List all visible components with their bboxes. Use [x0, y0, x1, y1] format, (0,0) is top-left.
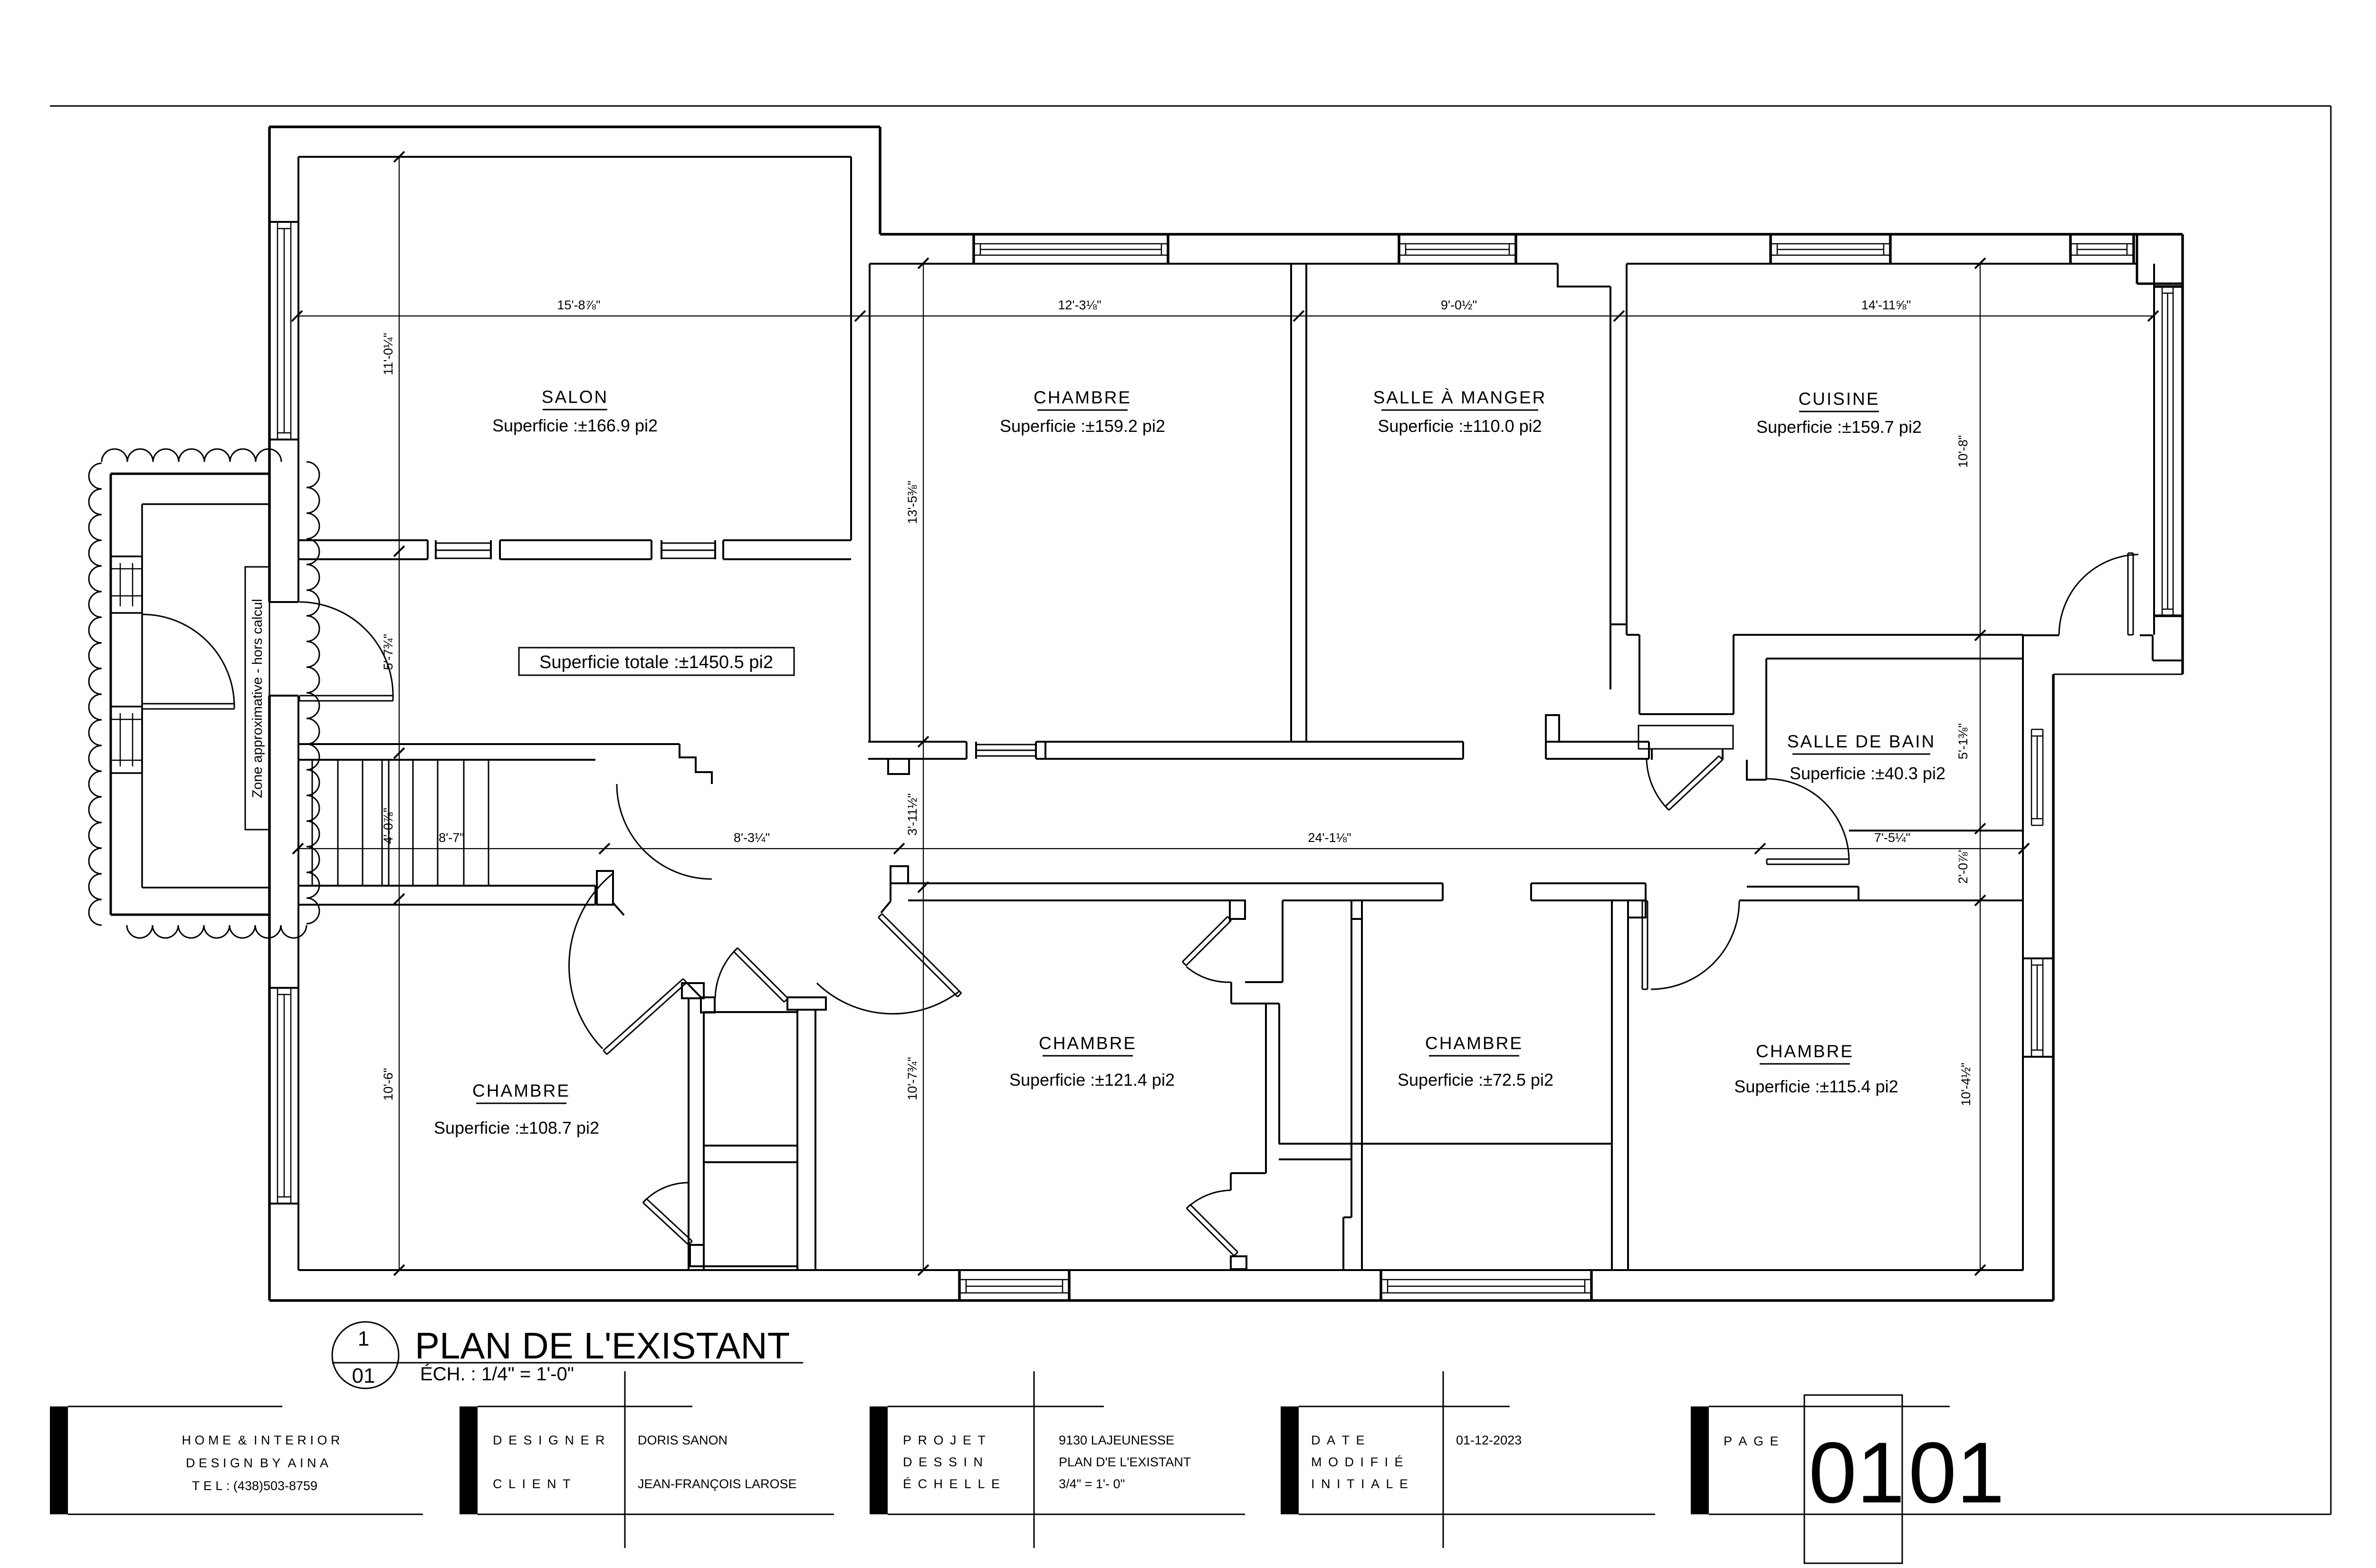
- svg-text:9'-0½": 9'-0½": [1441, 298, 1477, 312]
- svg-text:Superficie :±166.9 pi2: Superficie :±166.9 pi2: [492, 416, 658, 435]
- svg-text:5'-1⅜": 5'-1⅜": [1956, 723, 1970, 759]
- svg-text:M O D I F I É: M O D I F I É: [1311, 1455, 1405, 1469]
- svg-text:Superficie :±115.4 pi2: Superficie :±115.4 pi2: [1734, 1077, 1898, 1096]
- svg-text:14'-11⅝": 14'-11⅝": [1861, 298, 1911, 312]
- svg-text:10'-4½": 10'-4½": [1959, 1062, 1973, 1106]
- svg-text:1: 1: [358, 1327, 369, 1350]
- svg-text:01: 01: [352, 1364, 375, 1387]
- svg-text:Superficie :±110.0 pi2: Superficie :±110.0 pi2: [1378, 416, 1542, 436]
- svg-text:24'-1⅛": 24'-1⅛": [1308, 831, 1351, 845]
- svg-text:7'-5¼": 7'-5¼": [1874, 831, 1910, 845]
- svg-text:8'-7": 8'-7": [439, 831, 464, 845]
- svg-text:01: 01: [1809, 1424, 1905, 1521]
- svg-text:8'-3¼": 8'-3¼": [734, 831, 770, 845]
- svg-text:3/4" = 1'- 0": 3/4" = 1'- 0": [1059, 1477, 1125, 1491]
- svg-text:12'-3⅛": 12'-3⅛": [1058, 298, 1101, 312]
- svg-text:DORIS SANON: DORIS SANON: [638, 1433, 728, 1447]
- svg-text:10'-6": 10'-6": [381, 1068, 395, 1101]
- svg-text:4'-0⅞": 4'-0⅞": [381, 808, 395, 844]
- svg-text:Superficie :±108.7 pi2: Superficie :±108.7 pi2: [434, 1118, 599, 1138]
- svg-text:P A G E: P A G E: [1724, 1434, 1780, 1448]
- svg-text:T E L : (438)503-8759: T E L : (438)503-8759: [192, 1479, 317, 1493]
- svg-text:C L I E N T: C L I E N T: [493, 1477, 572, 1491]
- svg-text:5'-7¾": 5'-7¾": [381, 634, 395, 670]
- svg-text:D E S I G N B Y A I N A: D E S I G N B Y A I N A: [186, 1456, 328, 1470]
- svg-text:Superficie :±72.5 pi2: Superficie :±72.5 pi2: [1398, 1070, 1553, 1090]
- svg-text:Superficie :±40.3 pi2: Superficie :±40.3 pi2: [1790, 764, 1945, 783]
- svg-text:Superficie :±159.2 pi2: Superficie :±159.2 pi2: [1000, 416, 1165, 436]
- svg-text:P R O J E T: P R O J E T: [903, 1433, 987, 1447]
- svg-text:Superficie :±159.7 pi2: Superficie :±159.7 pi2: [1756, 417, 1922, 437]
- svg-text:3'-11½": 3'-11½": [905, 793, 920, 835]
- svg-text:10'-8": 10'-8": [1956, 435, 1970, 468]
- svg-text:Superficie totale :±1450.5 pi2: Superficie totale :±1450.5 pi2: [539, 652, 773, 672]
- svg-text:CHAMBRE: CHAMBRE: [1034, 388, 1131, 407]
- svg-text:CUISINE: CUISINE: [1798, 389, 1879, 409]
- svg-text:PLAN DE L'EXISTANT: PLAN DE L'EXISTANT: [415, 1325, 790, 1367]
- svg-text:11'-0¼": 11'-0¼": [381, 333, 395, 375]
- svg-text:Zone approximative - hors calc: Zone approximative - hors calcul: [250, 599, 265, 798]
- svg-text:H O M E & I N T E R I O R: H O M E & I N T E R I O R: [182, 1433, 340, 1447]
- svg-text:ÉCH. : 1/4" = 1'-0": ÉCH. : 1/4" = 1'-0": [420, 1363, 574, 1385]
- svg-text:15'-8⅞": 15'-8⅞": [557, 298, 600, 312]
- svg-text:I N I T I A L E: I N I T I A L E: [1311, 1477, 1409, 1491]
- svg-text:D E S S I N: D E S S I N: [903, 1455, 984, 1469]
- svg-text:CHAMBRE: CHAMBRE: [1756, 1042, 1854, 1061]
- svg-text:13'-5⅜": 13'-5⅜": [905, 480, 920, 524]
- svg-text:D A T E: D A T E: [1311, 1433, 1366, 1447]
- svg-text:Superficie :±121.4 pi2: Superficie :±121.4 pi2: [1009, 1070, 1175, 1090]
- svg-text:PLAN D'E L'EXISTANT: PLAN D'E L'EXISTANT: [1059, 1455, 1191, 1469]
- svg-text:SALON: SALON: [542, 387, 608, 407]
- svg-text:D E S I G N E R: D E S I G N E R: [493, 1433, 606, 1447]
- svg-text:SALLE À MANGER: SALLE À MANGER: [1373, 388, 1547, 407]
- svg-text:01: 01: [1908, 1424, 2004, 1521]
- svg-text:SALLE DE BAIN: SALLE DE BAIN: [1787, 732, 1936, 751]
- svg-text:CHAMBRE: CHAMBRE: [1425, 1033, 1523, 1053]
- svg-text:CHAMBRE: CHAMBRE: [472, 1081, 570, 1100]
- svg-text:É C H E L L E: É C H E L L E: [903, 1477, 1001, 1491]
- svg-text:9130 LAJEUNESSE: 9130 LAJEUNESSE: [1059, 1433, 1174, 1447]
- svg-text:10'-7¾": 10'-7¾": [905, 1057, 920, 1100]
- svg-text:JEAN-FRANÇOIS LAROSE: JEAN-FRANÇOIS LAROSE: [638, 1477, 797, 1491]
- svg-text:01-12-2023: 01-12-2023: [1456, 1433, 1522, 1447]
- svg-text:2'-0⅞": 2'-0⅞": [1956, 848, 1970, 884]
- svg-text:CHAMBRE: CHAMBRE: [1039, 1033, 1137, 1053]
